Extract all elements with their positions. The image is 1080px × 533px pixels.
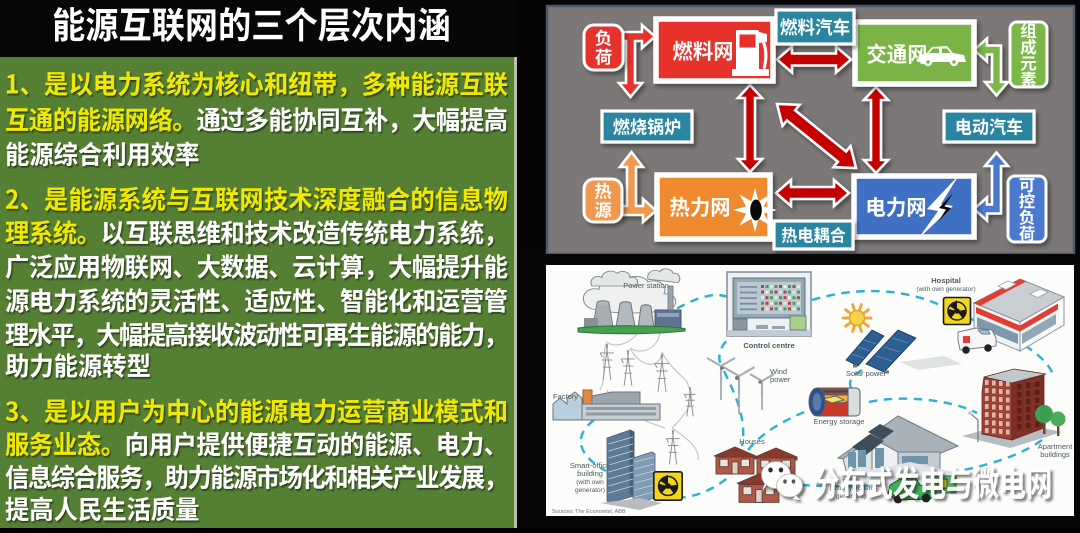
svg-text:Solar power: Solar power <box>846 369 887 378</box>
svg-text:(with own: (with own <box>576 479 604 486</box>
svg-text:Power station: Power station <box>623 281 668 290</box>
svg-text:Houses: Houses <box>739 437 765 446</box>
svg-text:Energy storage: Energy storage <box>814 417 865 426</box>
svg-text:power: power <box>770 375 791 384</box>
svg-text:(with hydrogen: (with hydrogen <box>830 485 873 492</box>
svg-text:Sources: The Economist; ABB: Sources: The Economist; ABB <box>552 509 626 515</box>
svg-text:buildings: buildings <box>1040 450 1070 459</box>
svg-text:Factory: Factory <box>553 392 578 401</box>
svg-text:Hospital: Hospital <box>931 276 961 285</box>
svg-text:generator): generator) <box>575 487 605 494</box>
svg-text:building: building <box>577 469 603 478</box>
svg-text:Control centre: Control centre <box>743 341 794 350</box>
svg-text:(with own generator): (with own generator) <box>916 286 975 293</box>
